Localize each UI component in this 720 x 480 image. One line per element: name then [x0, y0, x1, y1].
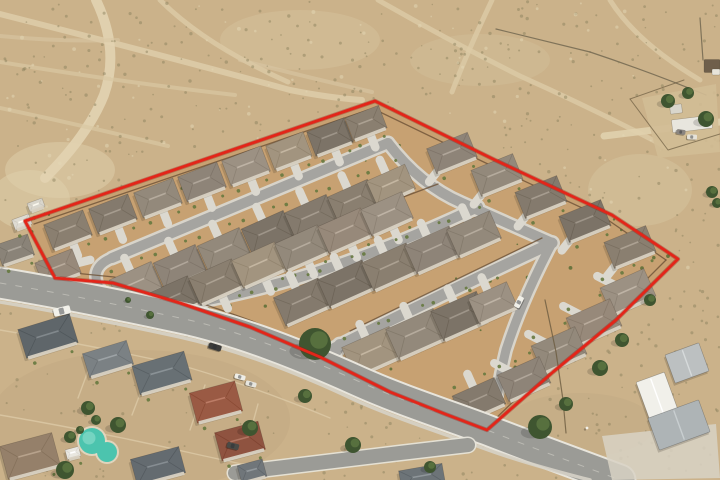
sand-dot [8, 108, 12, 112]
scrub-dot [456, 7, 459, 10]
scrub-dot [686, 163, 689, 166]
scrub-dot [712, 5, 714, 7]
scrub-dot [657, 182, 660, 185]
scrub-dot [620, 374, 623, 377]
scrub-dot [43, 56, 45, 58]
scrub-dot [716, 409, 719, 412]
scrub-dot [322, 471, 325, 474]
shrub-dot [389, 368, 392, 371]
scrub-dot [105, 150, 107, 152]
tree-highlight [86, 402, 94, 410]
scrub-dot [124, 118, 126, 120]
scrub-dot [240, 423, 242, 425]
sand-dot [484, 47, 487, 50]
scrub-dot [302, 97, 304, 99]
scrub-dot [4, 57, 7, 60]
scrub-dot [521, 125, 523, 127]
scrub-dot [84, 93, 87, 96]
scrub-dot [458, 85, 459, 86]
sand-dot [686, 266, 690, 270]
scrub-dot [69, 91, 71, 93]
scrub-dot [150, 108, 153, 111]
scrub-dot [351, 402, 354, 405]
scrub-dot [299, 68, 301, 70]
scrub-dot [260, 58, 263, 61]
scrub-dot [86, 65, 89, 68]
scrub-dot [454, 49, 457, 52]
scrub-dot [439, 73, 441, 75]
scrub-dot [625, 416, 627, 418]
scrub-dot [240, 71, 241, 72]
sand-dot [219, 109, 221, 111]
scrub-dot [505, 134, 508, 137]
scrub-dot [44, 171, 46, 173]
scrub-dot [701, 320, 704, 323]
scrub-dot [570, 52, 572, 54]
scrub-dot [703, 39, 706, 42]
scrub-dot [160, 115, 163, 118]
scrub-dot [478, 21, 481, 24]
scrub-dot [471, 68, 473, 70]
scrub-dot [382, 471, 385, 474]
scrub-dot [313, 24, 316, 27]
scrub-dot [315, 81, 317, 83]
scrub-dot [143, 119, 146, 122]
tree-highlight [620, 334, 628, 342]
sand-dot [206, 39, 208, 41]
scrub-dot [15, 385, 17, 387]
scrub-dot [429, 92, 431, 94]
scrub-dot [89, 115, 91, 117]
sand-dot [111, 76, 113, 78]
sand-dot [685, 188, 688, 191]
scrub-dot [111, 126, 114, 129]
scrub-dot [421, 87, 423, 89]
scrub-dot [509, 57, 511, 59]
scrub-dot [121, 412, 124, 415]
sand-dot [430, 16, 432, 18]
scrub-dot [180, 41, 183, 44]
shrub-dot [480, 329, 482, 331]
scrub-dot [118, 329, 121, 332]
sand-dot [306, 91, 308, 93]
scrub-dot [167, 85, 170, 88]
scrub-dot [410, 57, 412, 59]
scrub-dot [268, 20, 271, 23]
scrub-dot [235, 102, 238, 105]
scrub-dot [507, 48, 509, 50]
scrub-dot [90, 21, 93, 24]
scrub-dot [268, 390, 270, 392]
scrub-dot [186, 412, 188, 414]
scrub-dot [103, 12, 106, 15]
sand-dot [414, 4, 418, 8]
sand-dot [418, 24, 422, 28]
sand-dot [41, 80, 43, 82]
sand-dot [45, 205, 48, 208]
scrub-dot [353, 88, 355, 90]
scrub-dot [184, 91, 187, 94]
sand-dot [452, 28, 454, 30]
scrub-dot [184, 445, 186, 447]
tree-highlight [648, 295, 655, 302]
sand-dot [211, 68, 213, 70]
scrub-dot [503, 464, 506, 467]
scrub-dot [421, 45, 422, 46]
scrub-dot [145, 137, 148, 140]
scrub-dot [364, 52, 366, 54]
scrub-dot [16, 73, 18, 75]
scrub-dot [260, 123, 262, 125]
scrub-dot [23, 409, 25, 411]
scrub-dot [417, 67, 420, 70]
tree-highlight [686, 88, 693, 95]
scrub-dot [351, 59, 354, 62]
scrub-dot [702, 310, 704, 312]
sand-dot [459, 57, 461, 59]
sand-dot [268, 84, 270, 86]
scrub-dot [118, 141, 121, 144]
scrub-dot [296, 25, 299, 28]
scrub-dot [682, 235, 684, 237]
scrub-dot [520, 14, 523, 17]
scrub-dot [360, 32, 362, 34]
sand-dot [587, 29, 590, 32]
scrub-dot [343, 93, 346, 96]
scrub-dot [541, 138, 543, 140]
sand-dot [72, 174, 74, 176]
sand-dot [138, 85, 140, 87]
scrub-dot [460, 47, 463, 50]
scrub-dot [111, 40, 113, 42]
shrub-dot [569, 266, 573, 270]
scrub-dot [588, 398, 590, 400]
scrub-dot [34, 71, 36, 73]
scrub-dot [360, 407, 362, 409]
scrub-dot [596, 414, 598, 416]
scrub-dot [676, 214, 678, 216]
scrub-dot [565, 175, 567, 177]
scrub-dot [530, 84, 532, 86]
scrub-dot [705, 322, 708, 325]
scrub-dot [715, 14, 718, 17]
sand-dot [615, 25, 618, 28]
scrub-dot [454, 74, 457, 77]
scrub-dot [601, 80, 603, 82]
scrub-dot [523, 32, 526, 35]
scrub-dot [52, 45, 55, 48]
scrub-dot [620, 87, 622, 89]
scrub-dot [351, 90, 354, 93]
scrub-dot [499, 42, 501, 44]
scrub-dot [590, 85, 592, 87]
scrub-dot [245, 28, 248, 31]
sand-dot [536, 7, 539, 10]
scrub-dot [638, 176, 640, 178]
scrub-dot [17, 145, 19, 147]
scrub-dot [526, 0, 529, 3]
scrub-dot [225, 60, 228, 63]
scrub-dot [141, 150, 143, 152]
scrub-dot [4, 199, 6, 201]
scrub-dot [601, 50, 603, 52]
scrub-dot [453, 43, 456, 46]
scrub-dot [220, 57, 222, 59]
scrub-dot [208, 54, 210, 56]
sand-dot [224, 21, 226, 23]
scrub-dot [98, 58, 101, 61]
scrub-dot [648, 338, 651, 341]
scrub-dot [63, 36, 66, 39]
scrub-dot [702, 219, 704, 221]
scrub-dot [343, 475, 345, 477]
scrub-dot [637, 55, 639, 57]
scrub-dot [679, 305, 682, 308]
scrub-dot [117, 63, 120, 66]
scrub-dot [65, 94, 67, 96]
tree-highlight [428, 462, 435, 469]
sand-dot [632, 75, 634, 77]
scrub-dot [643, 5, 646, 8]
scrub-dot [51, 8, 54, 11]
sand-dot [248, 106, 250, 108]
scrub-dot [484, 58, 487, 61]
scrub-dot [504, 126, 506, 128]
scrub-dot [28, 67, 30, 69]
scrub-dot [637, 343, 640, 346]
scrub-dot [646, 151, 649, 154]
sand-dot [340, 75, 344, 79]
scrub-dot [462, 79, 464, 81]
scrub-dot [611, 99, 613, 101]
scrub-dot [572, 60, 575, 63]
scrub-dot [714, 26, 716, 28]
tree-highlight [68, 432, 75, 439]
sand-dot [574, 13, 578, 17]
vehicle [686, 134, 697, 141]
scrub-dot [598, 156, 601, 159]
scrub-dot [370, 435, 373, 438]
sand-dot [604, 159, 606, 161]
scrub-dot [640, 331, 643, 334]
tree-highlight [149, 312, 153, 316]
sand-dot [132, 97, 134, 99]
scrub-dot [704, 13, 706, 15]
scrub-dot [571, 124, 573, 126]
scrub-dot [634, 391, 637, 394]
scrub-dot [101, 323, 102, 324]
scrub-dot [585, 53, 588, 56]
scrub-dot [221, 8, 224, 11]
scrub-dot [636, 35, 639, 38]
scrub-dot [26, 103, 29, 106]
sand-dot [138, 39, 140, 41]
scrub-dot [139, 21, 142, 24]
scrub-dot [152, 94, 154, 96]
scrub-dot [9, 312, 12, 315]
scrub-dot [99, 468, 101, 470]
rural-structure [712, 69, 720, 75]
scrub-dot [193, 145, 196, 148]
scrub-dot [389, 422, 392, 425]
scrub-dot [174, 25, 176, 27]
scrub-dot [192, 128, 194, 130]
scrub-dot [655, 91, 658, 94]
sand-dot [457, 61, 460, 64]
scrub-dot [683, 290, 685, 292]
scrub-dot [588, 194, 591, 197]
scrub-dot [526, 112, 529, 115]
sand-dot [310, 41, 313, 44]
scrub-dot [266, 416, 269, 419]
tree-highlight [666, 95, 674, 103]
scrub-dot [347, 426, 349, 428]
scrub-dot [701, 290, 704, 293]
scrub-dot [690, 178, 693, 181]
sand-dot [580, 2, 582, 4]
pedestrian-shadow [584, 428, 586, 430]
scrub-dot [662, 88, 665, 91]
scrub-dot [26, 120, 28, 122]
scrub-dot [92, 384, 94, 386]
tree-highlight [536, 417, 549, 430]
scrub-dot [569, 182, 571, 184]
scrub-dot [593, 134, 595, 136]
tree-highlight [564, 398, 572, 406]
scrub-dot [103, 72, 106, 75]
scrub-dot [608, 351, 611, 354]
scrub-dot [267, 70, 270, 73]
scrub-dot [704, 213, 706, 215]
scrub-dot [6, 402, 8, 404]
sand-dot [31, 64, 34, 67]
scrub-dot [165, 2, 168, 5]
scrub-dot [75, 198, 78, 201]
tree-highlight [598, 362, 607, 371]
sand-dot [493, 111, 496, 114]
scrub-dot [339, 42, 342, 45]
scrub-dot [557, 119, 560, 122]
scrub-dot [100, 51, 102, 53]
scrub-dot [679, 250, 681, 252]
aerial-photo-canvas [0, 0, 720, 480]
scrub-dot [98, 190, 100, 192]
shrub-dot [514, 360, 517, 363]
tree-highlight [116, 419, 125, 428]
scrub-dot [33, 55, 35, 57]
scrub-dot [320, 55, 323, 58]
scrub-dot [337, 98, 340, 101]
scrub-dot [693, 261, 695, 263]
scrub-dot [359, 90, 362, 93]
scrub-dot [578, 186, 580, 188]
pool-water [97, 442, 117, 462]
tree-highlight [710, 187, 717, 194]
scrub-dot [246, 59, 249, 62]
aerial-photograph [0, 0, 720, 480]
scrub-dot [618, 210, 621, 213]
scrub-dot [273, 432, 275, 434]
scrub-dot [567, 149, 569, 151]
sand-dot [105, 144, 109, 148]
pool-highlight [83, 432, 96, 445]
scrub-dot [33, 121, 36, 124]
tree-highlight [303, 390, 311, 398]
scrub-dot [101, 43, 104, 46]
scrub-dot [119, 135, 122, 138]
scrub-dot [102, 475, 104, 477]
sand-dot [237, 27, 241, 31]
scrub-dot [478, 83, 481, 86]
scrub-dot [88, 34, 91, 37]
scrub-dot [57, 25, 59, 27]
scrub-dot [539, 163, 541, 165]
scrub-dot [595, 14, 597, 16]
scrub-dot [135, 16, 138, 19]
scrub-dot [647, 323, 650, 326]
scrub-dot [27, 106, 30, 109]
sand-dot [247, 112, 251, 116]
scrub-dot [128, 153, 130, 155]
scrub-dot [168, 441, 171, 444]
sand-dot [503, 119, 507, 123]
scrub-dot [493, 80, 496, 83]
scrub-dot [697, 60, 699, 62]
scrub-dot [344, 411, 347, 414]
scrub-dot [616, 43, 619, 46]
scrub-dot [557, 435, 559, 437]
scrub-dot [307, 39, 310, 42]
scrub-dot [64, 66, 67, 69]
scrub-dot [693, 304, 696, 307]
scrub-dot [546, 129, 548, 131]
scrub-dot [481, 51, 484, 54]
scrub-dot [524, 141, 526, 143]
sand-dot [666, 166, 669, 169]
scrub-dot [58, 4, 60, 6]
shrub-dot [652, 256, 656, 260]
scrub-dot [471, 472, 473, 474]
scrub-dot [509, 128, 512, 131]
scrub-dot [439, 30, 441, 32]
scrub-dot [598, 429, 601, 432]
scrub-dot [487, 66, 488, 67]
scrub-dot [164, 42, 167, 45]
scrub-dot [488, 32, 491, 35]
sand-dot [291, 79, 294, 82]
scrub-dot [109, 150, 112, 153]
scrub-dot [589, 357, 592, 360]
scrub-dot [287, 119, 290, 122]
scrub-dot [52, 178, 55, 181]
scrub-dot [685, 382, 687, 384]
scrub-dot [419, 437, 420, 438]
sand-dot [461, 66, 464, 69]
sand-dot [650, 139, 652, 141]
scrub-dot [717, 244, 720, 247]
sand-dot [360, 24, 362, 26]
scrub-dot [358, 65, 361, 68]
sand-dot [590, 188, 593, 191]
scrub-dot [47, 373, 49, 375]
scrub-dot [538, 50, 541, 53]
scrub-dot [286, 47, 289, 50]
scrub-dot [188, 79, 191, 82]
sand-dot [96, 125, 99, 128]
scrub-dot [336, 105, 339, 108]
scrub-dot [45, 475, 47, 477]
scrub-dot [147, 44, 149, 46]
